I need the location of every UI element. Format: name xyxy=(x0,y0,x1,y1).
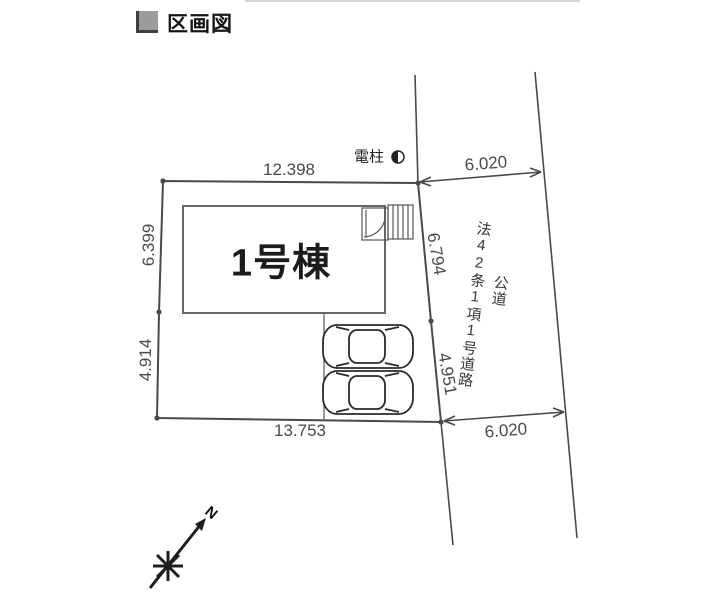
site-plan-drawing xyxy=(0,0,704,603)
road-edge-lines xyxy=(415,72,577,545)
plot-plan-page: { "header": { "title": "区画図" }, "plan": … xyxy=(0,0,704,603)
dim-road-width-top: 6.020 xyxy=(464,152,508,175)
north-arrow-icon xyxy=(150,518,206,588)
utility-pole-icon xyxy=(392,151,404,163)
dim-top-edge: 12.398 xyxy=(263,160,315,180)
utility-pole-label: 電柱 xyxy=(354,146,384,167)
road-type-label: 公道 xyxy=(489,274,509,308)
dim-bottom-edge: 13.753 xyxy=(274,421,326,441)
car-icon xyxy=(323,371,413,414)
dim-road-width-bottom: 6.020 xyxy=(484,419,528,442)
building-label: 1号棟 xyxy=(231,232,331,287)
car-icon xyxy=(323,325,413,368)
dim-left-upper-edge: 6.399 xyxy=(139,224,159,267)
dim-left-lower-edge: 4.914 xyxy=(136,339,156,382)
entrance-steps-icon xyxy=(388,205,413,239)
